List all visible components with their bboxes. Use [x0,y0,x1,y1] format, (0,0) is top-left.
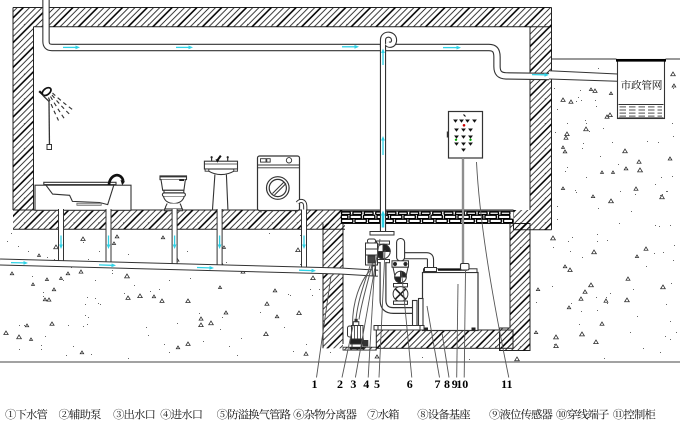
svg-text:3: 3 [350,377,356,391]
svg-text:5: 5 [374,377,380,391]
svg-text:11: 11 [501,377,512,391]
svg-text:7: 7 [435,377,441,391]
svg-text:6: 6 [407,377,413,391]
svg-text:10: 10 [456,377,468,391]
svg-text:2: 2 [337,377,343,391]
svg-text:1: 1 [312,377,318,391]
svg-text:4: 4 [363,377,369,391]
svg-text:8: 8 [444,377,450,391]
